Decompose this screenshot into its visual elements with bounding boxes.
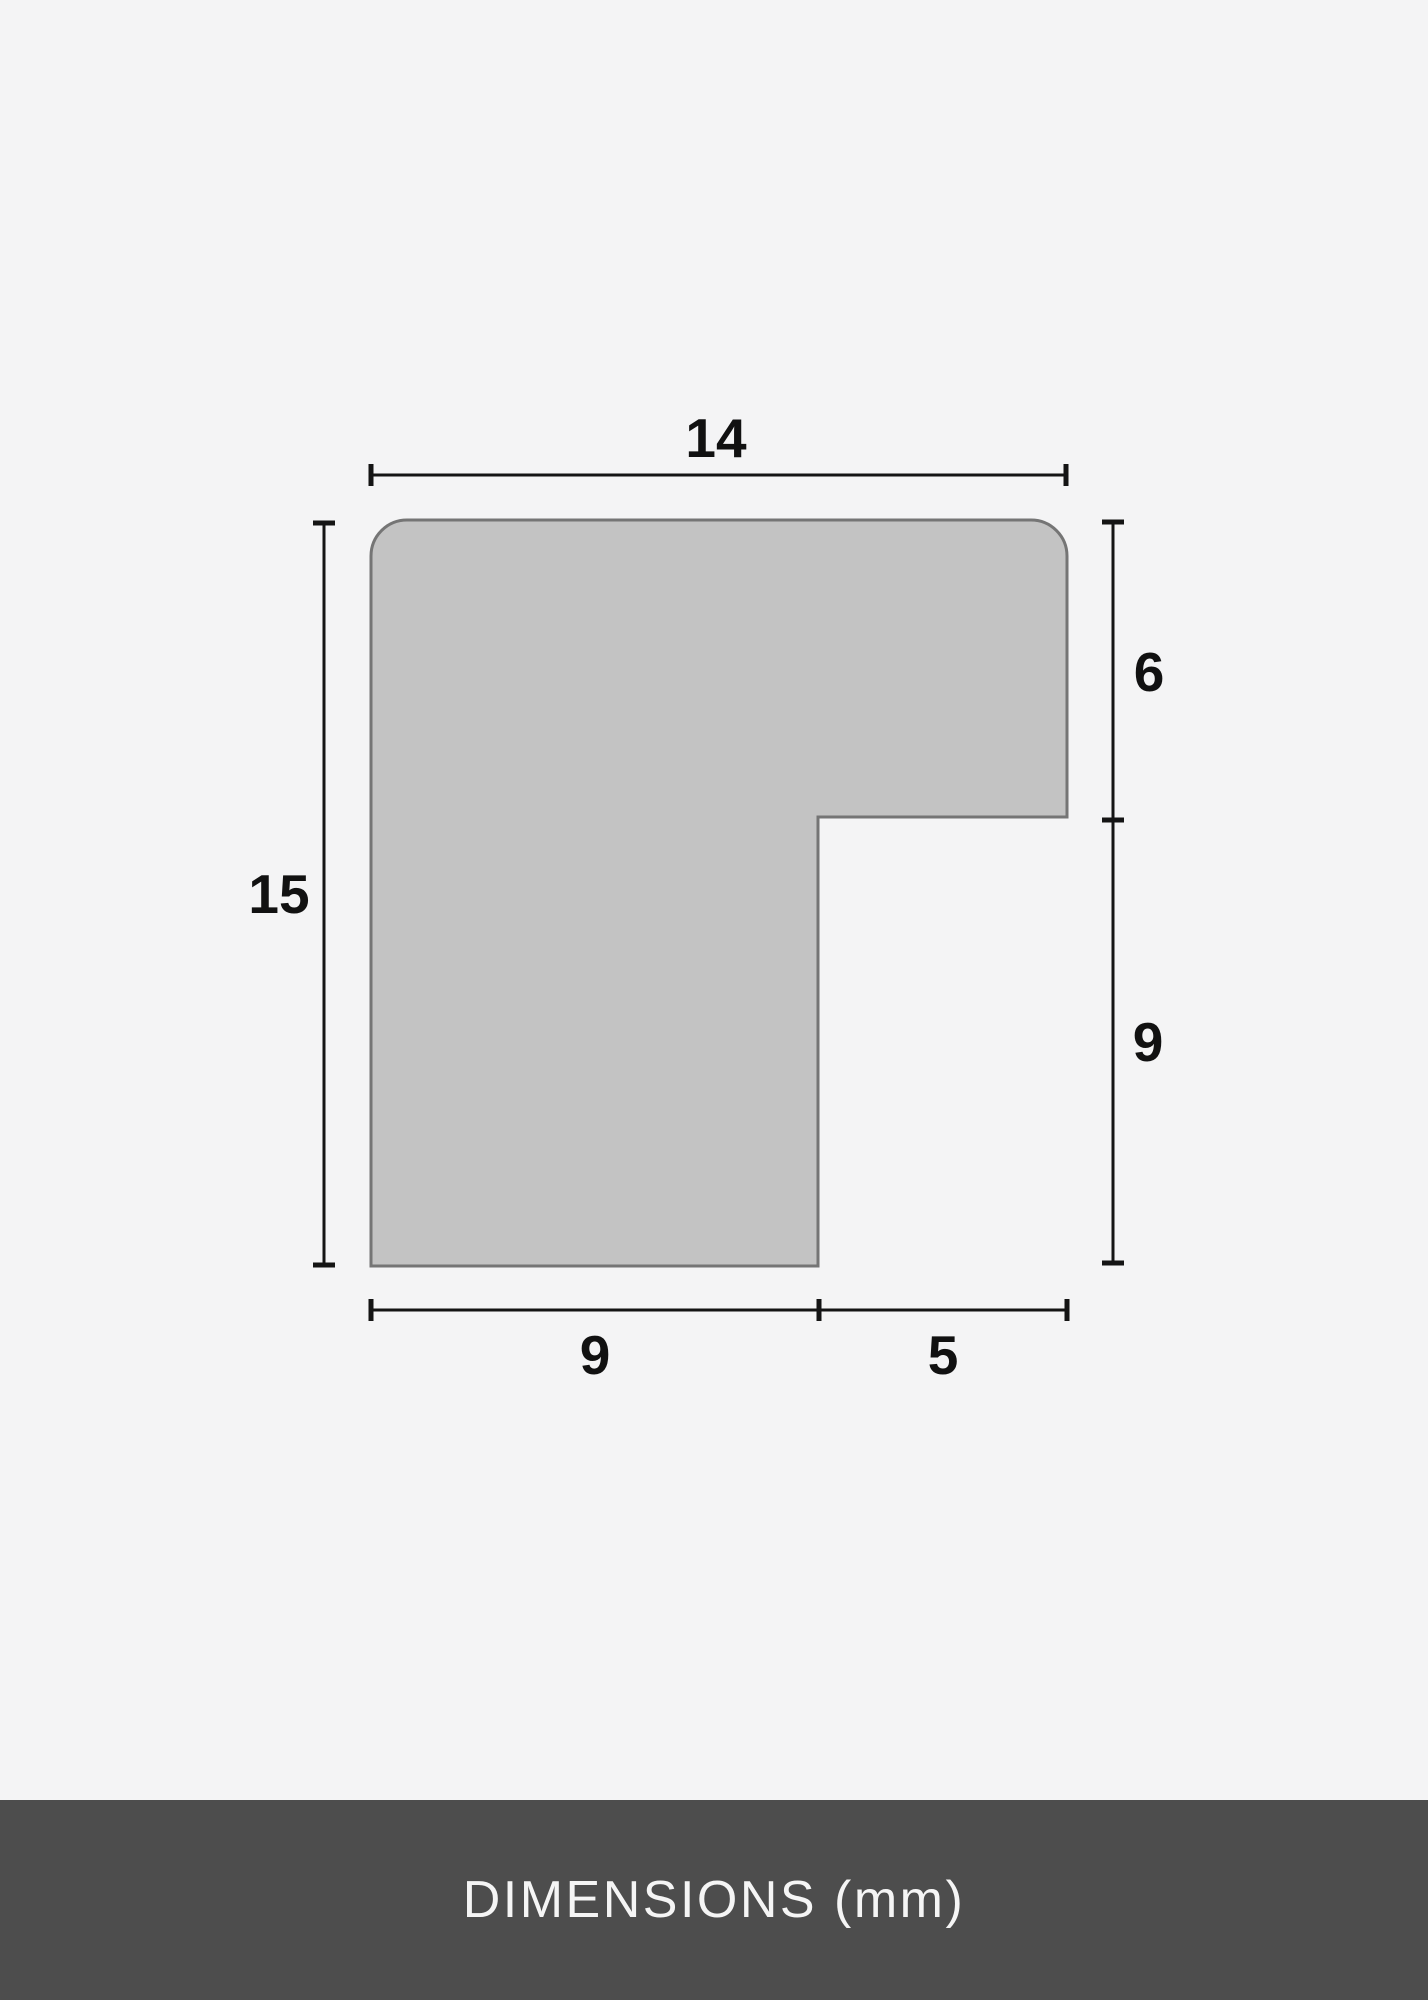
frame-profile-cross-section — [371, 520, 1067, 1266]
dimension-bottom-segments: 9 5 — [371, 1299, 1067, 1386]
page: { "diagram": { "unit": "mm", "dimensions… — [0, 0, 1428, 2000]
footer-bar: DIMENSIONS (mm) — [0, 1800, 1428, 2000]
diagram-svg: 14 15 6 9 9 5 — [0, 0, 1428, 1800]
dim-label-top-width: 14 — [685, 407, 747, 469]
dimension-right-segments: 6 9 — [1102, 522, 1164, 1263]
footer-title: DIMENSIONS (mm) — [463, 1870, 966, 1930]
dim-label-right-upper: 6 — [1134, 641, 1165, 703]
dim-label-bottom-left: 9 — [580, 1324, 611, 1386]
profile-dimensions-diagram: 14 15 6 9 9 5 — [0, 0, 1428, 1800]
dim-label-right-lower: 9 — [1133, 1011, 1164, 1073]
dim-label-left-height: 15 — [248, 863, 309, 925]
dimension-left-height: 15 — [248, 523, 335, 1265]
dimension-top-width: 14 — [371, 407, 1066, 486]
dim-label-bottom-right: 5 — [928, 1324, 959, 1386]
